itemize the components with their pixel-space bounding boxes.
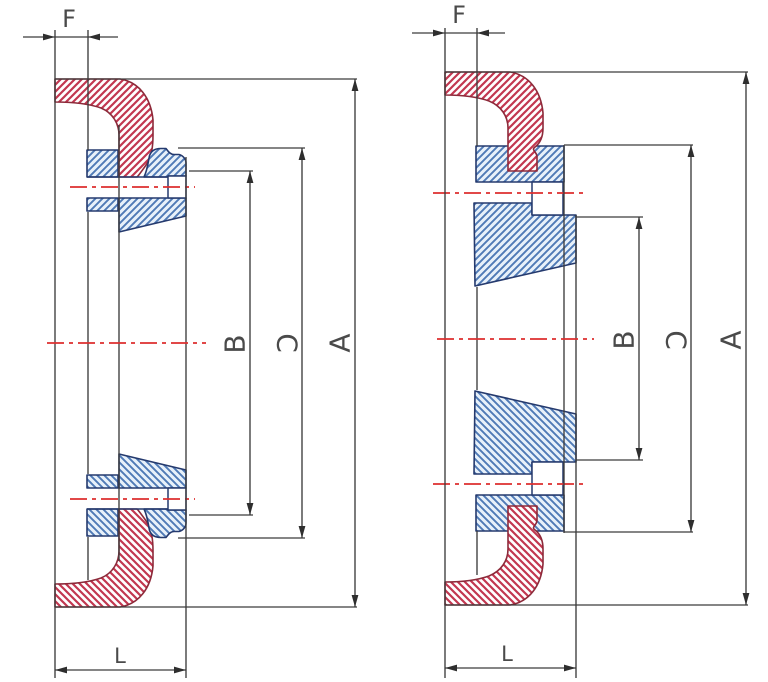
dim-label-B-left: B [219, 334, 252, 353]
bushing-flange-block [87, 150, 118, 177]
arrowhead [352, 595, 359, 607]
arrowhead [174, 667, 186, 674]
bushing-taper-barrel [119, 198, 186, 232]
arrowhead [564, 665, 576, 672]
arrowhead [688, 145, 695, 157]
arrowhead [88, 34, 100, 41]
bushing-flange-block-thin [87, 198, 118, 211]
dim-label-L-left: L [114, 644, 126, 668]
dim-label-L-right: L [501, 642, 513, 666]
right-lower-half [433, 391, 748, 605]
arrowhead [743, 72, 750, 84]
arrowhead [433, 30, 445, 37]
dim-label-A-right: A [715, 330, 748, 349]
dim-label-C-right: C [660, 330, 693, 350]
arrowhead [636, 448, 643, 460]
arrowhead [247, 171, 254, 183]
arrowhead [55, 667, 67, 674]
arrowhead [743, 593, 750, 605]
dimension-B-right: B [608, 217, 643, 460]
pulley-bushing-drawing: F B C A L [0, 0, 768, 682]
dim-label-C-left: C [271, 333, 304, 353]
dimension-F-right: F [412, 1, 505, 36]
arrowhead [43, 34, 55, 41]
dimension-C-right: C [660, 145, 695, 532]
arrowhead [636, 217, 643, 229]
dim-label-A-left: A [324, 333, 357, 352]
bushing-nose [144, 149, 186, 178]
dim-label-B-right: B [608, 330, 641, 349]
right-upper-half [433, 72, 748, 286]
dimension-A-left: A [324, 79, 359, 607]
arrowhead [299, 148, 306, 160]
dimension-C-left: C [271, 148, 306, 538]
dimension-L-right: L [445, 642, 576, 671]
arrowhead [352, 79, 359, 91]
dimension-F-left: F [23, 5, 118, 40]
arrowhead [688, 520, 695, 532]
dim-label-F-left: F [62, 5, 76, 33]
left-upper-half [55, 79, 357, 232]
arrowhead [445, 665, 457, 672]
left-lower-half [55, 454, 357, 607]
arrowhead [477, 30, 489, 37]
right-section-view: F B C A L [412, 1, 749, 678]
dimension-A-right: A [715, 72, 750, 605]
engineering-drawing-canvas: F B C A L [0, 0, 768, 682]
keyway-slot [532, 182, 563, 215]
arrowhead [247, 503, 254, 515]
arrowhead [299, 526, 306, 538]
dim-label-F-right: F [452, 1, 466, 29]
left-section-view: F B C A L [23, 5, 358, 678]
dimension-L-left: L [55, 644, 186, 673]
dimension-B-left: B [219, 171, 254, 515]
